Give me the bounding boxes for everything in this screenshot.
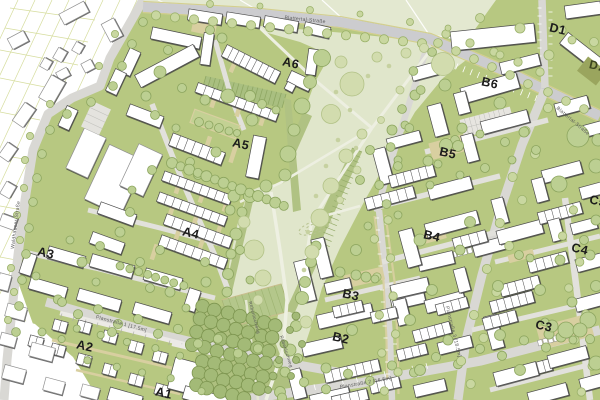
svg-text:A1: A1 bbox=[154, 384, 174, 400]
